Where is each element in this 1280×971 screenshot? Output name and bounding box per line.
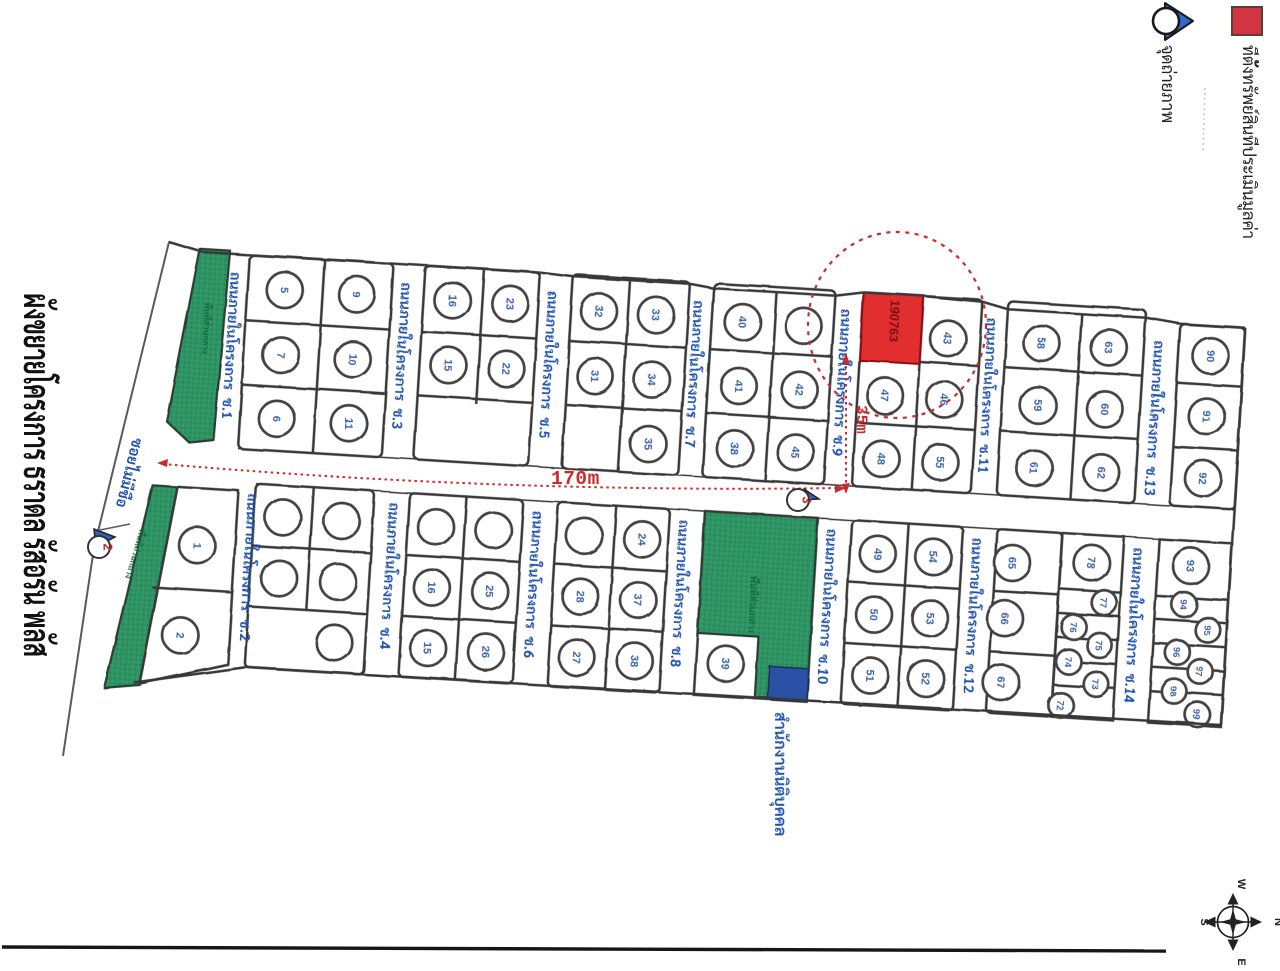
svg-text:27: 27 (570, 651, 583, 664)
svg-text:91: 91 (1199, 410, 1212, 423)
svg-text:9: 9 (349, 291, 361, 298)
svg-text:N: N (1272, 918, 1280, 926)
svg-text:170m: 170m (551, 468, 600, 490)
svg-text:42: 42 (792, 383, 805, 396)
svg-text:97: 97 (1193, 666, 1205, 677)
svg-text:E: E (1235, 958, 1247, 965)
svg-text:41: 41 (731, 379, 744, 392)
svg-text:53: 53 (923, 612, 936, 625)
svg-text:65: 65 (1005, 556, 1018, 569)
svg-text:34: 34 (645, 373, 658, 387)
svg-text:99: 99 (1190, 709, 1202, 720)
svg-text:75: 75 (1092, 640, 1104, 652)
svg-text:1: 1 (190, 542, 202, 549)
svg-text:45: 45 (788, 446, 801, 459)
svg-text:46: 46 (937, 393, 950, 406)
svg-text:35: 35 (641, 437, 654, 450)
svg-text:94: 94 (1177, 599, 1189, 611)
svg-text:49: 49 (870, 547, 883, 560)
svg-text:63: 63 (1101, 341, 1114, 354)
svg-text:67: 67 (994, 676, 1007, 689)
svg-text:23: 23 (503, 297, 516, 310)
svg-text:98: 98 (1167, 685, 1179, 696)
svg-text:72: 72 (1054, 700, 1066, 711)
svg-text:78: 78 (1084, 556, 1097, 569)
svg-text:7: 7 (274, 351, 286, 358)
svg-text:25: 25 (482, 585, 495, 598)
svg-text:26: 26 (479, 646, 492, 659)
svg-text:90: 90 (1203, 349, 1216, 362)
svg-text:11: 11 (341, 417, 354, 429)
svg-text:58: 58 (1035, 337, 1048, 350)
svg-text:2: 2 (101, 543, 116, 550)
svg-text:60: 60 (1098, 403, 1111, 416)
svg-text:10: 10 (345, 353, 358, 366)
svg-text:95: 95 (1200, 624, 1212, 636)
svg-text:5: 5 (278, 287, 290, 294)
svg-text:40: 40 (735, 316, 748, 329)
svg-text:32: 32 (592, 305, 605, 318)
svg-text:47: 47 (878, 389, 891, 402)
svg-text:93: 93 (1183, 559, 1196, 572)
svg-text:66: 66 (998, 612, 1011, 625)
svg-text:3: 3 (800, 496, 815, 503)
svg-text:2: 2 (173, 632, 185, 639)
svg-text:51: 51 (863, 669, 876, 682)
svg-text:48: 48 (874, 452, 887, 465)
svg-text:24: 24 (635, 533, 648, 547)
svg-text:38: 38 (728, 442, 741, 455)
svg-text:50: 50 (867, 608, 880, 621)
svg-text:16: 16 (445, 294, 458, 307)
svg-text:61: 61 (1027, 462, 1040, 475)
svg-text:35m: 35m (852, 405, 870, 434)
svg-text:37: 37 (631, 594, 644, 607)
svg-text:96: 96 (1170, 647, 1182, 658)
svg-text:16: 16 (425, 581, 438, 594)
svg-text:38: 38 (627, 655, 640, 668)
svg-text:W: W (1235, 879, 1247, 890)
svg-text:6: 6 (270, 415, 282, 422)
svg-text:92: 92 (1196, 472, 1209, 485)
svg-text:S: S (1198, 918, 1210, 925)
svg-text:39: 39 (718, 657, 731, 670)
svg-text:74: 74 (1061, 656, 1073, 668)
svg-text:33: 33 (649, 308, 662, 321)
svg-text:31: 31 (588, 370, 601, 383)
svg-text:59: 59 (1031, 399, 1044, 412)
svg-text:52: 52 (919, 672, 932, 685)
svg-text:76: 76 (1066, 621, 1078, 632)
svg-text:77: 77 (1097, 597, 1109, 608)
svg-text:54: 54 (926, 551, 939, 565)
svg-text:28: 28 (573, 590, 586, 603)
svg-text:43: 43 (941, 332, 954, 345)
svg-text:15: 15 (421, 642, 434, 655)
svg-text:15: 15 (441, 359, 454, 372)
svg-text:55: 55 (933, 456, 946, 469)
svg-text:22: 22 (499, 362, 512, 375)
svg-text:73: 73 (1089, 679, 1101, 690)
svg-text:62: 62 (1094, 466, 1107, 479)
svg-text:190763: 190763 (886, 300, 903, 343)
